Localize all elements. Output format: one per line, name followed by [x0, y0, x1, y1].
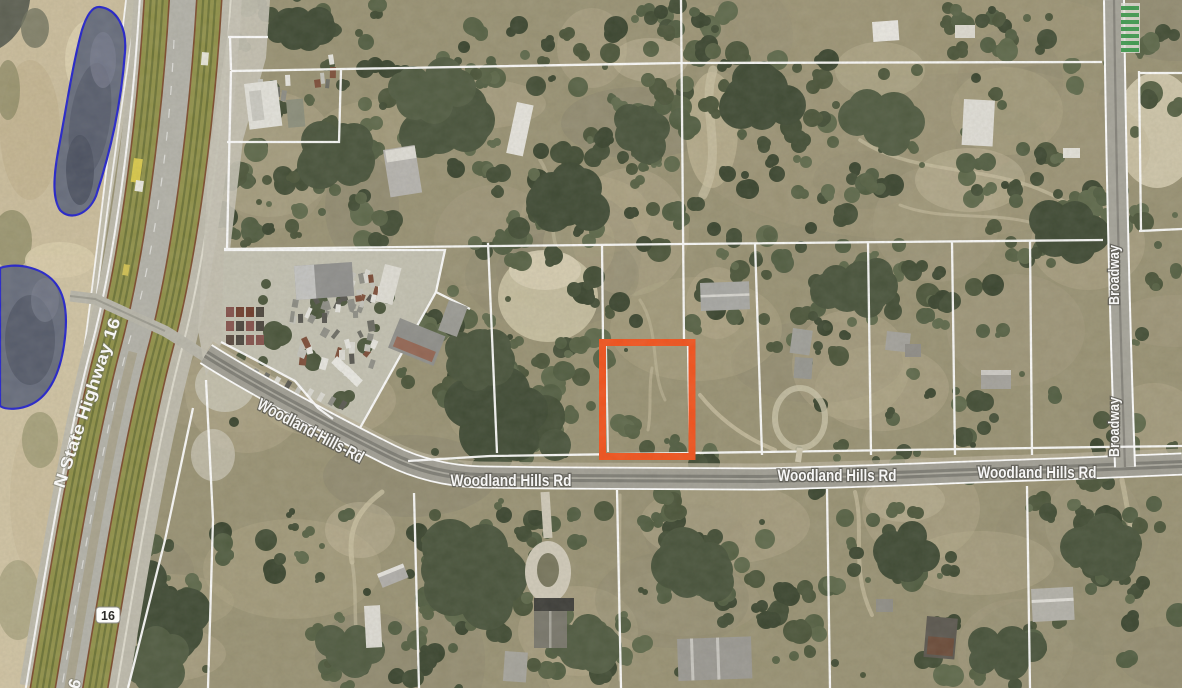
svg-text:16: 16: [101, 609, 115, 623]
